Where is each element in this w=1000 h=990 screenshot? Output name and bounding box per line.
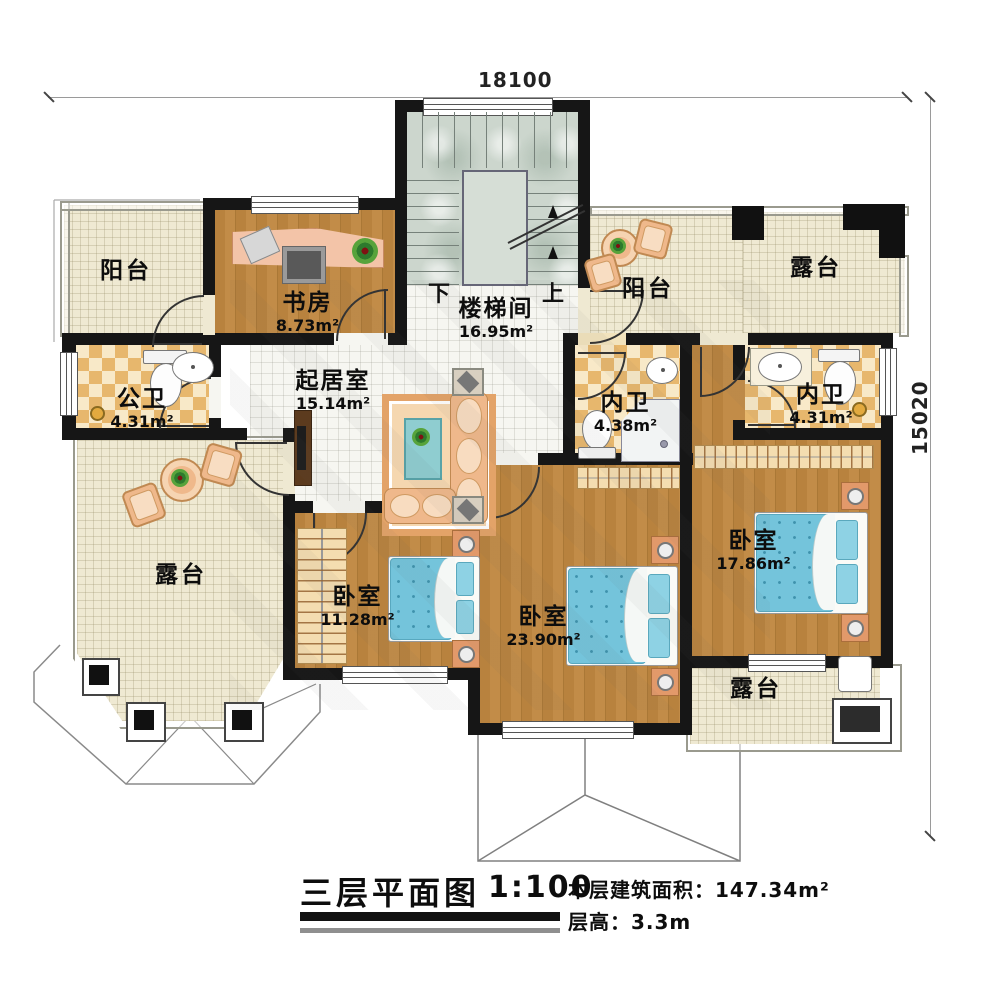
room-label-bedroom-small: 卧室 11.28m² (300, 584, 415, 630)
room-area: 8.73m² (250, 317, 365, 336)
room-name: 内卫 (568, 390, 683, 417)
room-label-bedroom-big: 卧室 23.90m² (486, 604, 601, 650)
monitor-icon (282, 246, 326, 284)
column-frame (832, 698, 892, 744)
room-label-balcony-right: 阳台 (622, 276, 674, 303)
door-leaf (152, 343, 202, 345)
room-area: 4.31m² (82, 413, 202, 432)
column (879, 204, 905, 258)
pillow (456, 600, 474, 634)
floor-area-text: 本层建筑面积：147.34m² (568, 874, 830, 903)
sink (172, 352, 214, 383)
plant-icon (610, 238, 626, 254)
nightstand (841, 482, 869, 510)
room-label-bedroom-right: 卧室 17.86m² (696, 528, 811, 574)
pillow (456, 562, 474, 596)
door-opening (313, 501, 365, 513)
room-label-study: 书房 8.73m² (250, 290, 365, 336)
column (89, 665, 109, 685)
railing (60, 201, 70, 337)
nightstand (651, 536, 679, 564)
corner-table (452, 368, 484, 396)
room-label-terrace-left: 露台 (155, 562, 207, 589)
room-name: 卧室 (300, 584, 415, 611)
ac-unit (838, 656, 872, 692)
table-flowers-icon (412, 428, 430, 446)
room-name: 起居室 (268, 368, 398, 395)
nightstand (452, 640, 480, 668)
room-name: 卧室 (486, 604, 601, 631)
railing (899, 255, 909, 337)
corner-table (452, 496, 484, 524)
plant-icon (171, 469, 189, 487)
sofa-cushion (390, 494, 420, 518)
floor-height-text: 层高：3.3m (568, 906, 691, 935)
shower-drain (660, 440, 668, 448)
wardrobe (577, 467, 680, 489)
floor-plan-page: 18100 15020 (0, 0, 1000, 990)
room-name: 公卫 (82, 386, 202, 413)
column (232, 710, 252, 730)
door-opening (700, 333, 748, 345)
room-name: 卧室 (696, 528, 811, 555)
nightstand (651, 668, 679, 696)
nightstand (452, 530, 480, 558)
room-name: 内卫 (762, 382, 880, 409)
door-leaf (578, 352, 624, 354)
door-opening (203, 295, 215, 335)
roof-ridge (478, 734, 740, 861)
window (502, 721, 634, 739)
room-label-balcony-left: 阳台 (100, 258, 152, 285)
window (748, 654, 826, 672)
sofa-cushion (422, 494, 452, 518)
door-leaf (384, 289, 386, 339)
room-label-terrace-top: 露台 (790, 255, 842, 282)
sink (646, 357, 678, 384)
title-underline-secondary (300, 928, 560, 933)
column-frame (126, 702, 166, 742)
column (134, 710, 154, 730)
toilet-tank (578, 447, 616, 459)
room-area: 17.86m² (696, 555, 811, 574)
pillow (836, 520, 858, 560)
room-area: 4.31m² (762, 409, 880, 428)
stair-direction-arrow (548, 246, 558, 259)
door-opening (733, 380, 745, 420)
room-area: 15.14m² (268, 395, 398, 414)
sofa-cushion (456, 398, 482, 434)
room-name: 楼梯间 (426, 296, 566, 323)
window (879, 348, 897, 416)
railing (60, 201, 207, 211)
column (732, 206, 764, 240)
room-area: 4.38m² (568, 417, 683, 436)
room-area: 16.95m² (426, 323, 566, 342)
column-frame (82, 658, 120, 696)
pillow (648, 618, 670, 658)
sofa-cushion (456, 438, 482, 474)
room-label-terrace-bottom: 露台 (730, 676, 782, 703)
column-frame (224, 702, 264, 742)
room-area: 23.90m² (486, 631, 601, 650)
wall (395, 100, 407, 345)
room-name: 书房 (250, 290, 365, 317)
roof-outline (478, 734, 740, 861)
window (342, 666, 448, 684)
room-label-bath-suite2: 内卫 4.31m² (762, 382, 880, 428)
stair-steps-top (407, 112, 578, 168)
tv-icon (297, 426, 306, 470)
wall (203, 198, 215, 297)
room-label-stairwell: 楼梯间 16.95m² (426, 296, 566, 342)
stair-landing (462, 170, 528, 286)
plant-icon (352, 238, 378, 264)
room-area: 11.28m² (300, 611, 415, 630)
wall (733, 428, 893, 440)
room-label-bath-suite1: 内卫 4.38m² (568, 390, 683, 436)
stair-direction-arrow (548, 205, 558, 218)
door-leaf (700, 347, 702, 395)
plan-title: 三层平面图 (300, 868, 480, 914)
stair-steps-left (407, 168, 459, 286)
door-leaf (235, 442, 287, 444)
pillow (836, 564, 858, 604)
window (251, 196, 359, 214)
column (840, 706, 880, 732)
window (60, 352, 78, 416)
pillow (648, 574, 670, 614)
room-label-bath-public: 公卫 4.31m² (82, 386, 202, 432)
nightstand (841, 614, 869, 642)
title-underline (300, 912, 560, 921)
wardrobe (694, 445, 874, 469)
room-label-living: 起居室 15.14m² (268, 368, 398, 414)
sink (758, 352, 802, 382)
